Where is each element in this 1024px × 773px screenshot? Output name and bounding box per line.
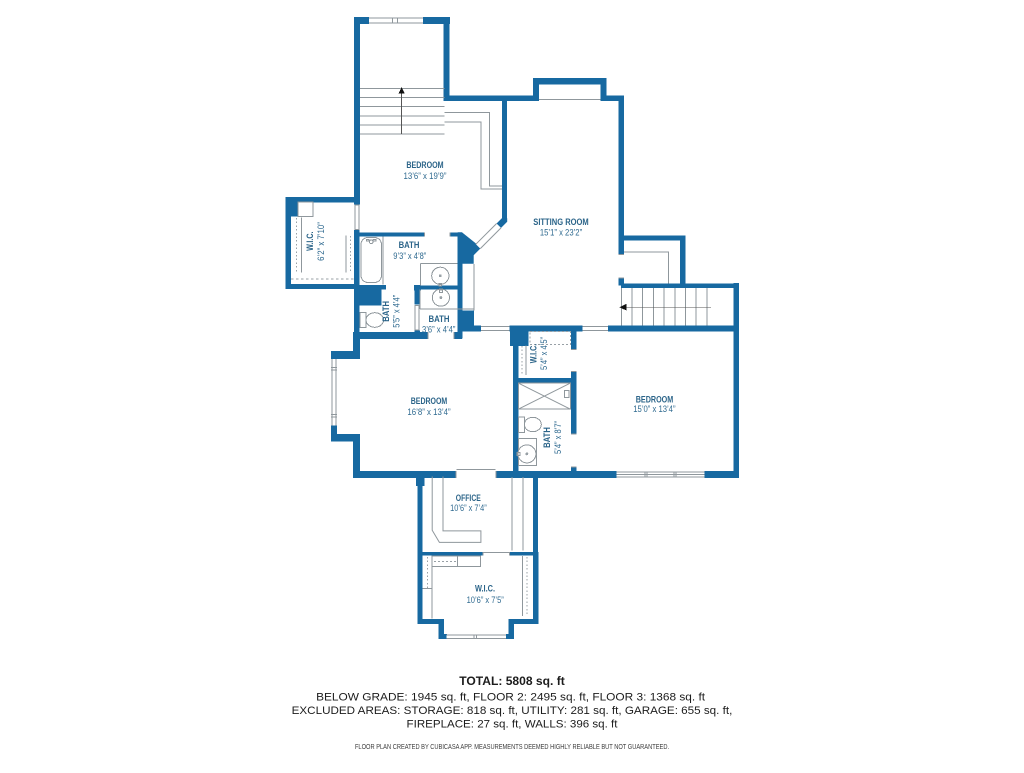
svg-text:BATH: BATH — [542, 427, 553, 448]
svg-text:EXCLUDED AREAS: STORAGE: 818 s: EXCLUDED AREAS: STORAGE: 818 sq. ft, UTI… — [292, 705, 733, 717]
svg-text:6’2” x 7’10”: 6’2” x 7’10” — [316, 222, 326, 261]
svg-text:15’1” x 23’2”: 15’1” x 23’2” — [540, 227, 582, 237]
svg-text:16’8” x 13’4”: 16’8” x 13’4” — [407, 407, 450, 417]
svg-text:5’4” x 4’5”: 5’4” x 4’5” — [539, 337, 549, 370]
svg-text:9’3” x 4’8”: 9’3” x 4’8” — [393, 251, 426, 261]
svg-text:5’4” x 8’7”: 5’4” x 8’7” — [553, 421, 563, 454]
svg-text:10’6” x 7’5”: 10’6” x 7’5” — [467, 595, 504, 605]
svg-text:10’6” x 7’4”: 10’6” x 7’4” — [450, 503, 487, 513]
svg-text:BEDROOM: BEDROOM — [411, 396, 448, 407]
svg-text:BEDROOM: BEDROOM — [406, 160, 443, 171]
svg-text:FLOOR PLAN CREATED BY CUBICASA: FLOOR PLAN CREATED BY CUBICASA APP. MEAS… — [355, 744, 669, 751]
svg-text:BELOW GRADE: 1945 sq. ft, FLOO: BELOW GRADE: 1945 sq. ft, FLOOR 2: 2495 … — [316, 691, 706, 703]
svg-text:15’0” x 13’4”: 15’0” x 13’4” — [633, 404, 675, 414]
svg-text:TOTAL: 5808 sq. ft: TOTAL: 5808 sq. ft — [459, 674, 565, 688]
svg-text:BATH: BATH — [399, 240, 420, 251]
svg-text:W.I.C.: W.I.C. — [475, 584, 495, 595]
svg-text:BATH: BATH — [428, 314, 449, 325]
svg-text:FIREPLACE: 27 sq. ft, WALLS: 3: FIREPLACE: 27 sq. ft, WALLS: 396 sq. ft — [407, 719, 619, 731]
svg-text:13’6” x 19’9”: 13’6” x 19’9” — [404, 171, 447, 181]
svg-text:W.I.C.: W.I.C. — [305, 232, 316, 251]
svg-text:5’5” x 4’4”: 5’5” x 4’4” — [391, 295, 401, 328]
